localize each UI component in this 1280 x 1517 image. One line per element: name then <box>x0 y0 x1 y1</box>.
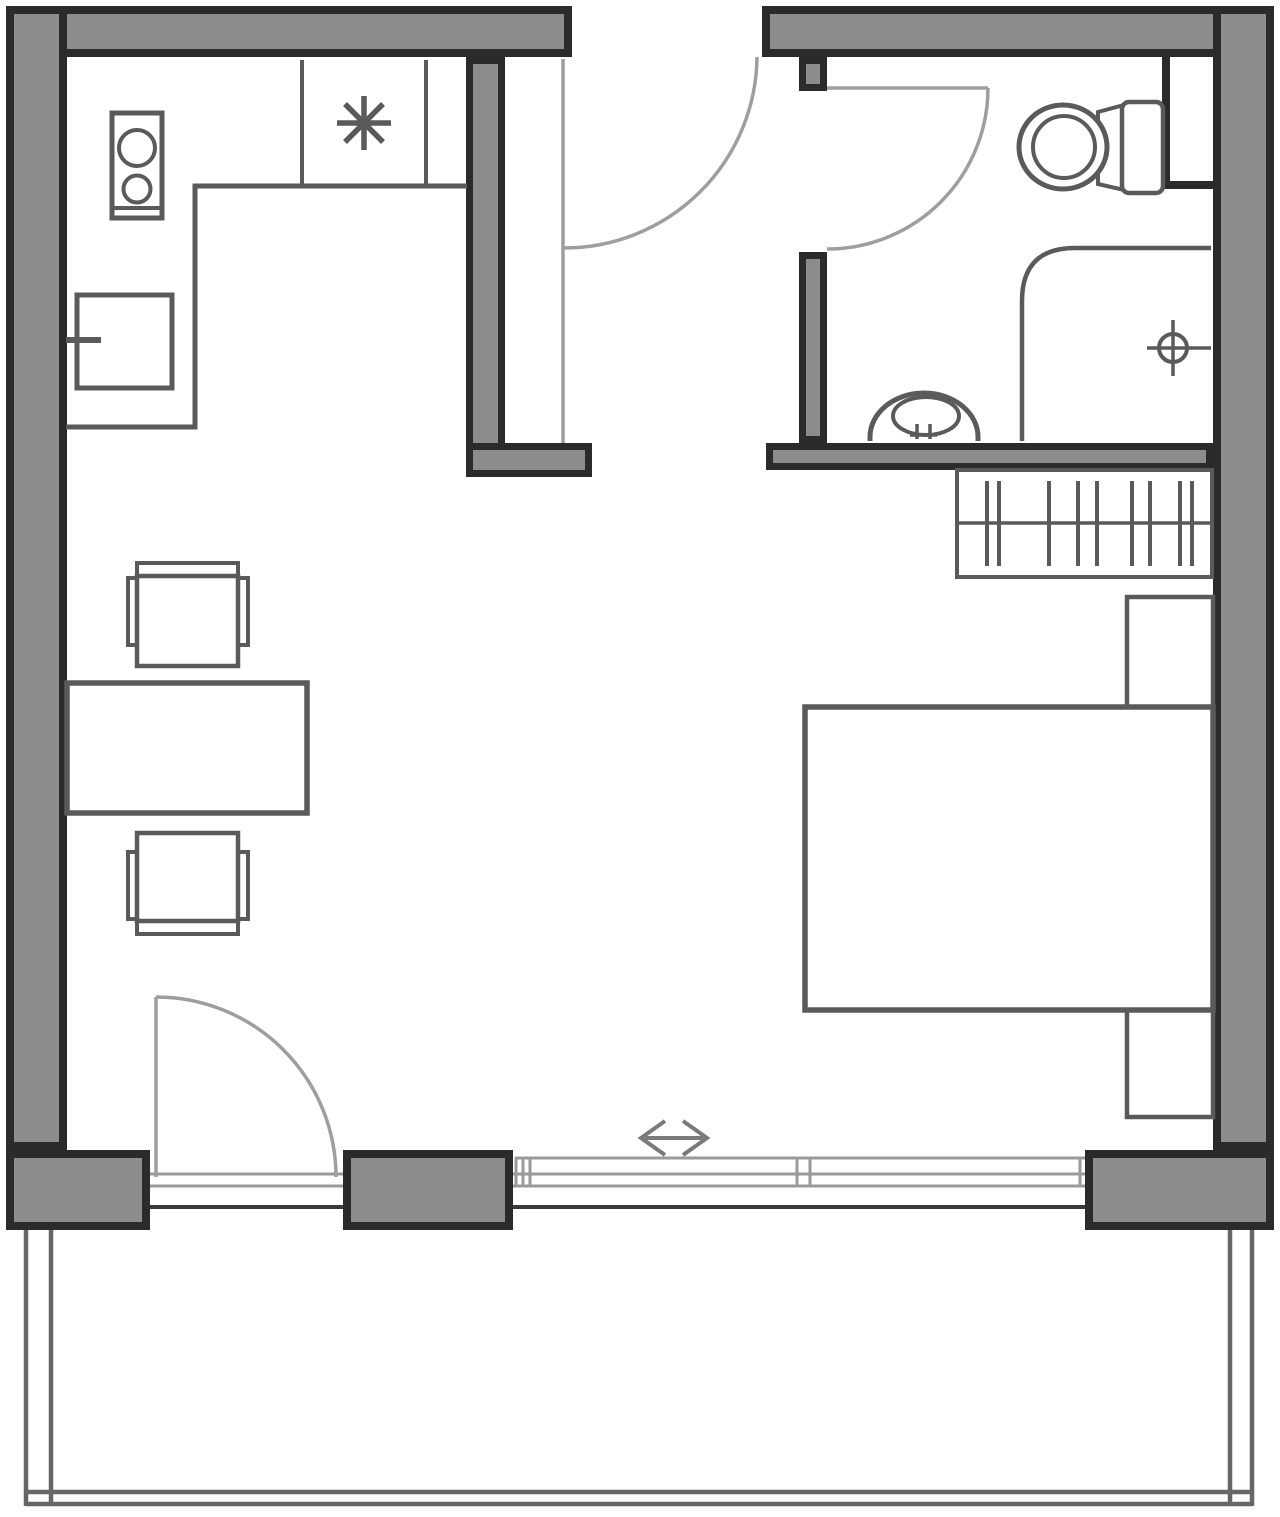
floor-plan-page <box>0 0 1280 1517</box>
kitchen-sink-icon <box>66 295 172 388</box>
bathroom <box>827 88 1211 441</box>
wall-top-right <box>766 10 1270 53</box>
chair-icon-top <box>128 563 248 666</box>
wardrobe-hangers-icon <box>957 470 1212 577</box>
floor-drain-icon <box>1147 320 1211 376</box>
entry-door-swing-arc <box>564 57 757 248</box>
washbasin-icon <box>870 393 978 441</box>
asterisk-strokes <box>337 96 391 150</box>
chair-seat <box>137 576 238 666</box>
entry-hall <box>563 57 757 443</box>
sleeping-area <box>805 597 1213 1117</box>
double-bed-icon <box>805 707 1213 1010</box>
toilet-tank <box>1122 102 1163 193</box>
interior-walls <box>470 57 1218 474</box>
nightstand-bottom <box>1127 1010 1213 1117</box>
appliance-asterisk-icon <box>337 96 391 150</box>
balcony-railing-icon <box>26 1230 1252 1506</box>
wall-top-left <box>10 10 568 53</box>
wall-pier-bottom-left <box>10 1154 146 1226</box>
chair-icon-bottom <box>128 833 248 934</box>
wall-bathroom-left <box>803 256 824 440</box>
stove-icon <box>112 113 162 218</box>
floor-plan-svg <box>0 0 1280 1517</box>
nightstand-top <box>1127 597 1213 707</box>
kitchen <box>66 60 467 427</box>
balcony-door-swing-arc <box>156 997 336 1177</box>
wall-kitchen-partition-foot <box>470 447 589 474</box>
window-mullion <box>797 1158 810 1186</box>
shower-icon <box>1022 248 1211 441</box>
toilet-icon <box>1019 102 1163 193</box>
wall-pier-bottom-right <box>1089 1154 1270 1226</box>
service-shaft-lines <box>1166 57 1217 185</box>
wall-right <box>1217 10 1270 1146</box>
wall-bathroom-bottom <box>770 447 1210 467</box>
wall-pier-bottom-middle <box>347 1154 509 1226</box>
balcony-door <box>156 997 336 1177</box>
dining-table-icon <box>67 683 307 813</box>
chair-seat <box>137 833 238 921</box>
wall-bathroom-door-jamb <box>803 61 824 88</box>
dining-area <box>67 563 307 934</box>
drain-cross <box>1147 320 1211 376</box>
wall-left <box>10 10 63 1146</box>
sliding-window-band <box>148 1158 1092 1207</box>
shower-enclosure <box>1022 248 1211 441</box>
bathroom-door-swing-arc <box>827 88 988 249</box>
sliding-door-arrow-icon <box>641 1121 707 1155</box>
wall-kitchen-partition <box>470 61 502 474</box>
window-mullion <box>516 1158 530 1186</box>
